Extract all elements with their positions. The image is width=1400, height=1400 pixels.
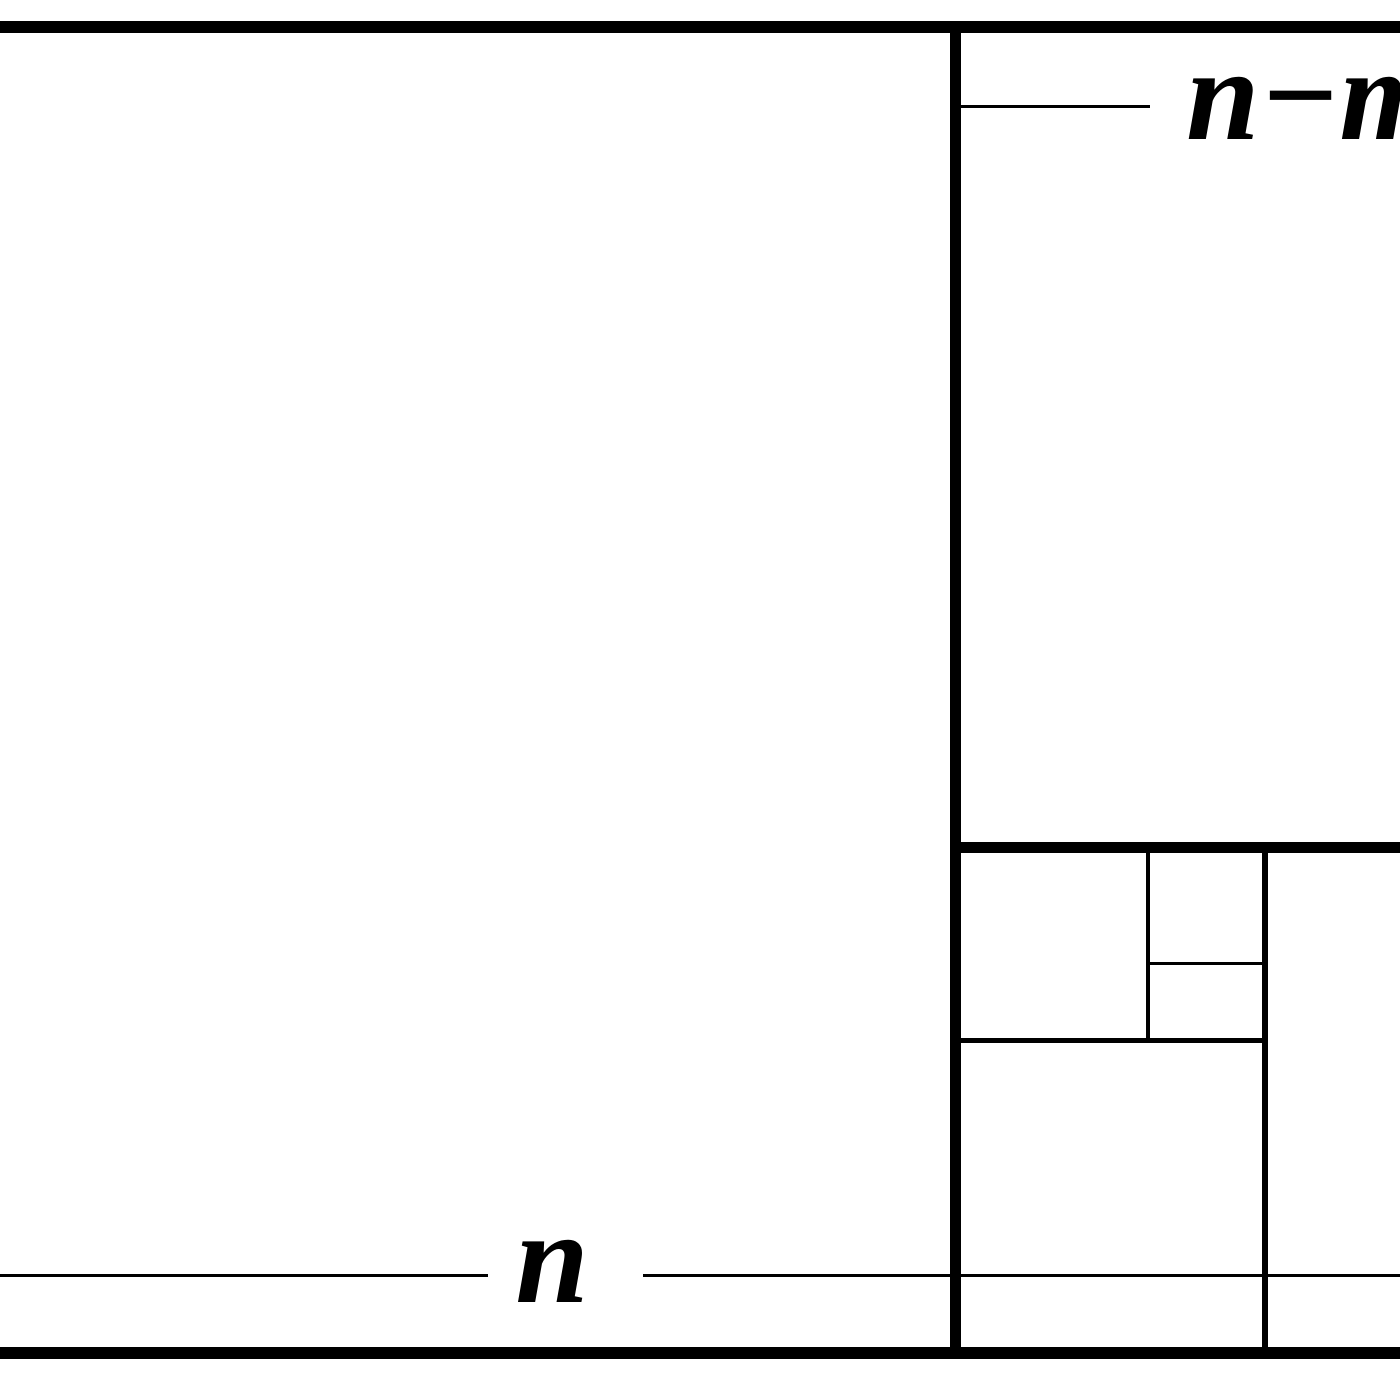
right-column-horizontal-divider-line	[950, 842, 1400, 853]
outer-rectangle-bottom-border	[0, 1347, 1400, 1359]
sub-square-horizontal-divider-line	[950, 1038, 1268, 1043]
dimension-line-n-left-segment	[0, 1274, 488, 1277]
left-square-right-edge-line	[950, 21, 961, 1359]
dimension-line-n-minus-m	[958, 105, 1150, 108]
label-n: n	[452, 1192, 652, 1324]
dimension-line-n-right-segment	[643, 1274, 1400, 1277]
sub-sub-square-horizontal-divider-line	[1146, 962, 1268, 965]
label-n-minus-m: n−m	[1186, 29, 1400, 161]
sub-sub-square-vertical-divider-line	[1146, 842, 1150, 1043]
subdivided-rectangle-figure: n n−m	[0, 0, 1400, 1400]
sub-square-vertical-divider-line	[1262, 842, 1268, 1359]
